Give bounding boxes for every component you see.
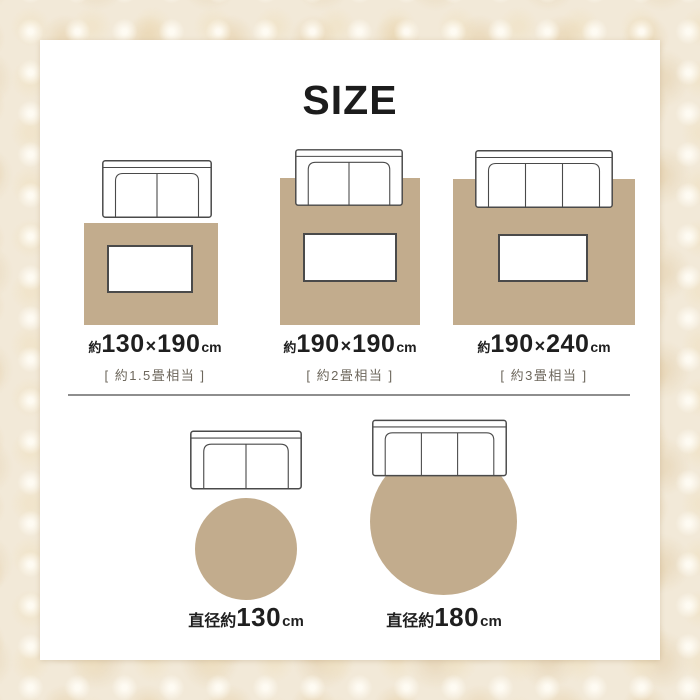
diameter-label: 直径約130cm [146, 604, 346, 635]
size-label: 約130×190cm [ 約1.5畳相当 ] [55, 331, 255, 384]
diameter-label: 直径約180cm [344, 604, 544, 635]
table-shape [107, 245, 193, 293]
sofa-top-view-icon [372, 418, 507, 478]
table-shape [303, 233, 397, 282]
tatami-equivalent-label: [ 約2畳相当 ] [250, 365, 450, 384]
sofa-top-view-icon [475, 150, 613, 208]
size-text: 約130×190cm [55, 331, 255, 361]
approx-prefix: 約 [283, 340, 296, 355]
section-divider [68, 394, 630, 396]
approx-prefix: 約 [477, 340, 490, 355]
times-symbol: × [146, 336, 157, 356]
size-text: 約190×240cm [444, 331, 644, 361]
size-label: 約190×190cm [ 約2畳相当 ] [250, 331, 450, 384]
size-text: 約190×190cm [250, 331, 450, 361]
tatami-equivalent-label: [ 約3畳相当 ] [444, 365, 644, 384]
tatami-equivalent-label: [ 約1.5畳相当 ] [55, 365, 255, 384]
times-symbol: × [535, 336, 546, 356]
table-shape [498, 234, 588, 282]
unit-text: cm [201, 339, 221, 355]
sofa-top-view-icon [295, 148, 403, 207]
unit-text: cm [396, 339, 416, 355]
size-chart-card: SIZE 約130×190cm [ 約1.5畳相当 ] [40, 40, 660, 660]
unit-text: cm [480, 613, 502, 630]
approx-prefix: 約 [88, 340, 101, 355]
diameter-prefix: 直径約 [386, 613, 434, 630]
times-symbol: × [341, 336, 352, 356]
unit-text: cm [282, 613, 304, 630]
size-text: 直径約180cm [344, 604, 544, 635]
size-text: 直径約130cm [146, 604, 346, 635]
sofa-top-view-icon [190, 430, 302, 490]
page-background: SIZE 約130×190cm [ 約1.5畳相当 ] [0, 0, 700, 700]
page-title: SIZE [40, 80, 660, 121]
diameter-prefix: 直径約 [188, 613, 236, 630]
round-rug-shape-130 [195, 498, 297, 600]
sofa-top-view-icon [102, 160, 212, 218]
size-label: 約190×240cm [ 約3畳相当 ] [444, 331, 644, 384]
unit-text: cm [590, 339, 610, 355]
